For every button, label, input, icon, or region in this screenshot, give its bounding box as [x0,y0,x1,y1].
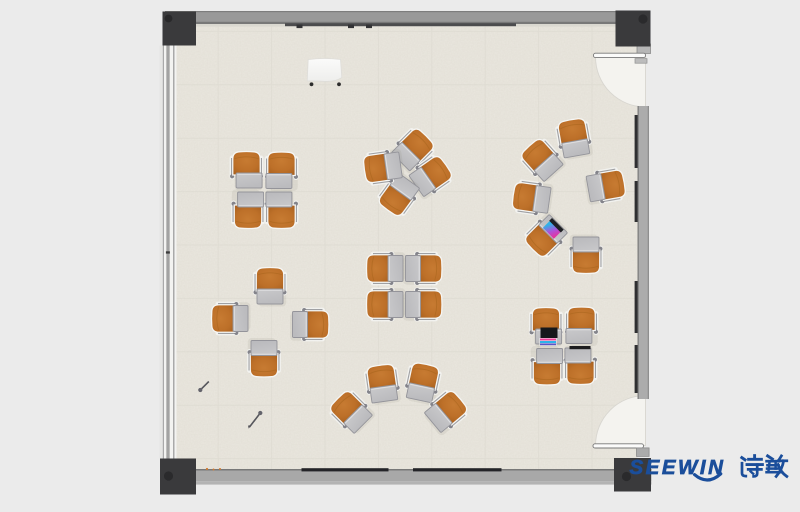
svg-text:SEEWIN: SEEWIN [630,456,726,479]
